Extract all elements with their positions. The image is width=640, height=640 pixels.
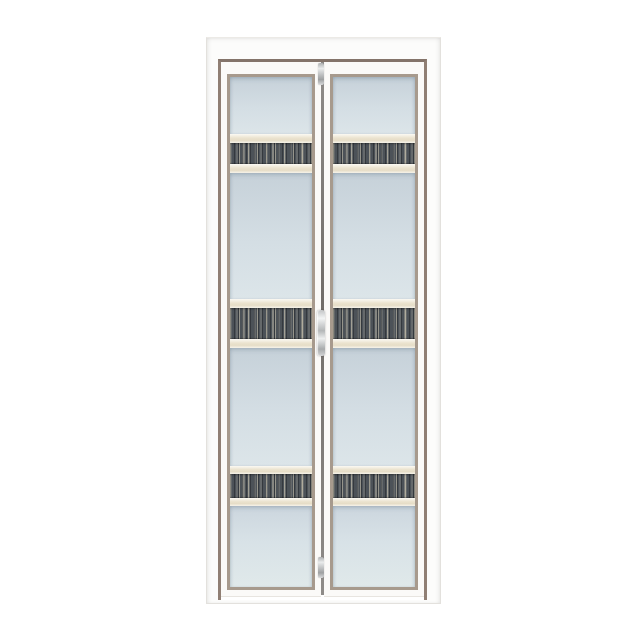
accent-band	[230, 466, 312, 474]
door-leaf-right	[324, 62, 424, 597]
accent-band	[333, 164, 415, 173]
glass-panel	[333, 506, 415, 587]
glass-panel	[230, 348, 312, 466]
glazing-frame-right	[330, 74, 418, 590]
glass-panel	[333, 348, 415, 466]
accent-band	[230, 299, 312, 308]
door-leaf-left	[221, 62, 321, 597]
glass-panel	[333, 173, 415, 299]
glass-panel	[230, 173, 312, 299]
accent-band	[333, 299, 415, 308]
accent-strip	[333, 308, 415, 339]
glass-panel	[333, 77, 415, 134]
accent-band	[333, 134, 415, 143]
accent-strip	[333, 143, 415, 164]
accent-band	[333, 466, 415, 474]
accent-band	[230, 164, 312, 173]
top-hinge	[318, 63, 324, 85]
product-photo	[0, 0, 640, 640]
glass-panel	[230, 506, 312, 587]
accent-band	[230, 498, 312, 506]
bottom-hinge	[318, 557, 324, 578]
accent-band	[333, 339, 415, 348]
glazing-frame-left	[227, 74, 315, 590]
glass-panel	[230, 77, 312, 134]
door-handle	[317, 310, 325, 356]
accent-band	[230, 134, 312, 143]
accent-band	[333, 498, 415, 506]
accent-strip	[230, 308, 312, 339]
accent-strip	[230, 474, 312, 498]
accent-band	[230, 339, 312, 348]
accent-strip	[230, 143, 312, 164]
accent-strip	[333, 474, 415, 498]
